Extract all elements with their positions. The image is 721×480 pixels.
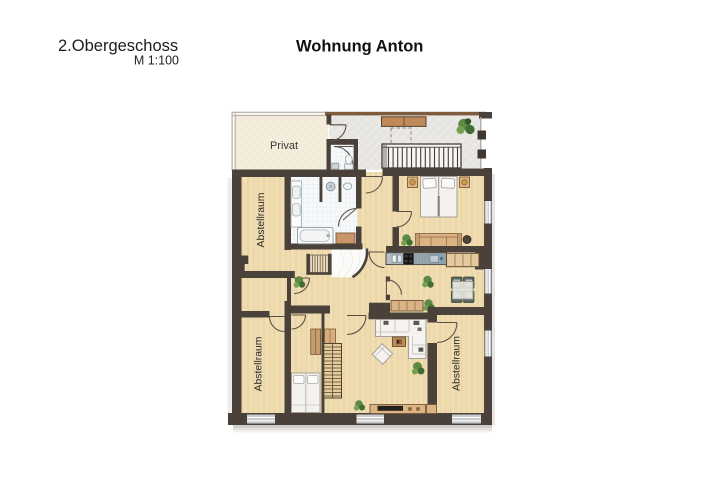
- svg-text:Abstellraum: Abstellraum: [452, 336, 463, 391]
- svg-text:Privat: Privat: [270, 140, 298, 152]
- svg-text:Abstellraum: Abstellraum: [254, 337, 265, 392]
- svg-text:2.Obergeschoss: 2.Obergeschoss: [58, 37, 178, 55]
- svg-text:Wohnung Anton: Wohnung Anton: [296, 38, 423, 56]
- svg-text:M 1:100: M 1:100: [134, 54, 179, 68]
- svg-text:Abstellraum: Abstellraum: [256, 193, 267, 248]
